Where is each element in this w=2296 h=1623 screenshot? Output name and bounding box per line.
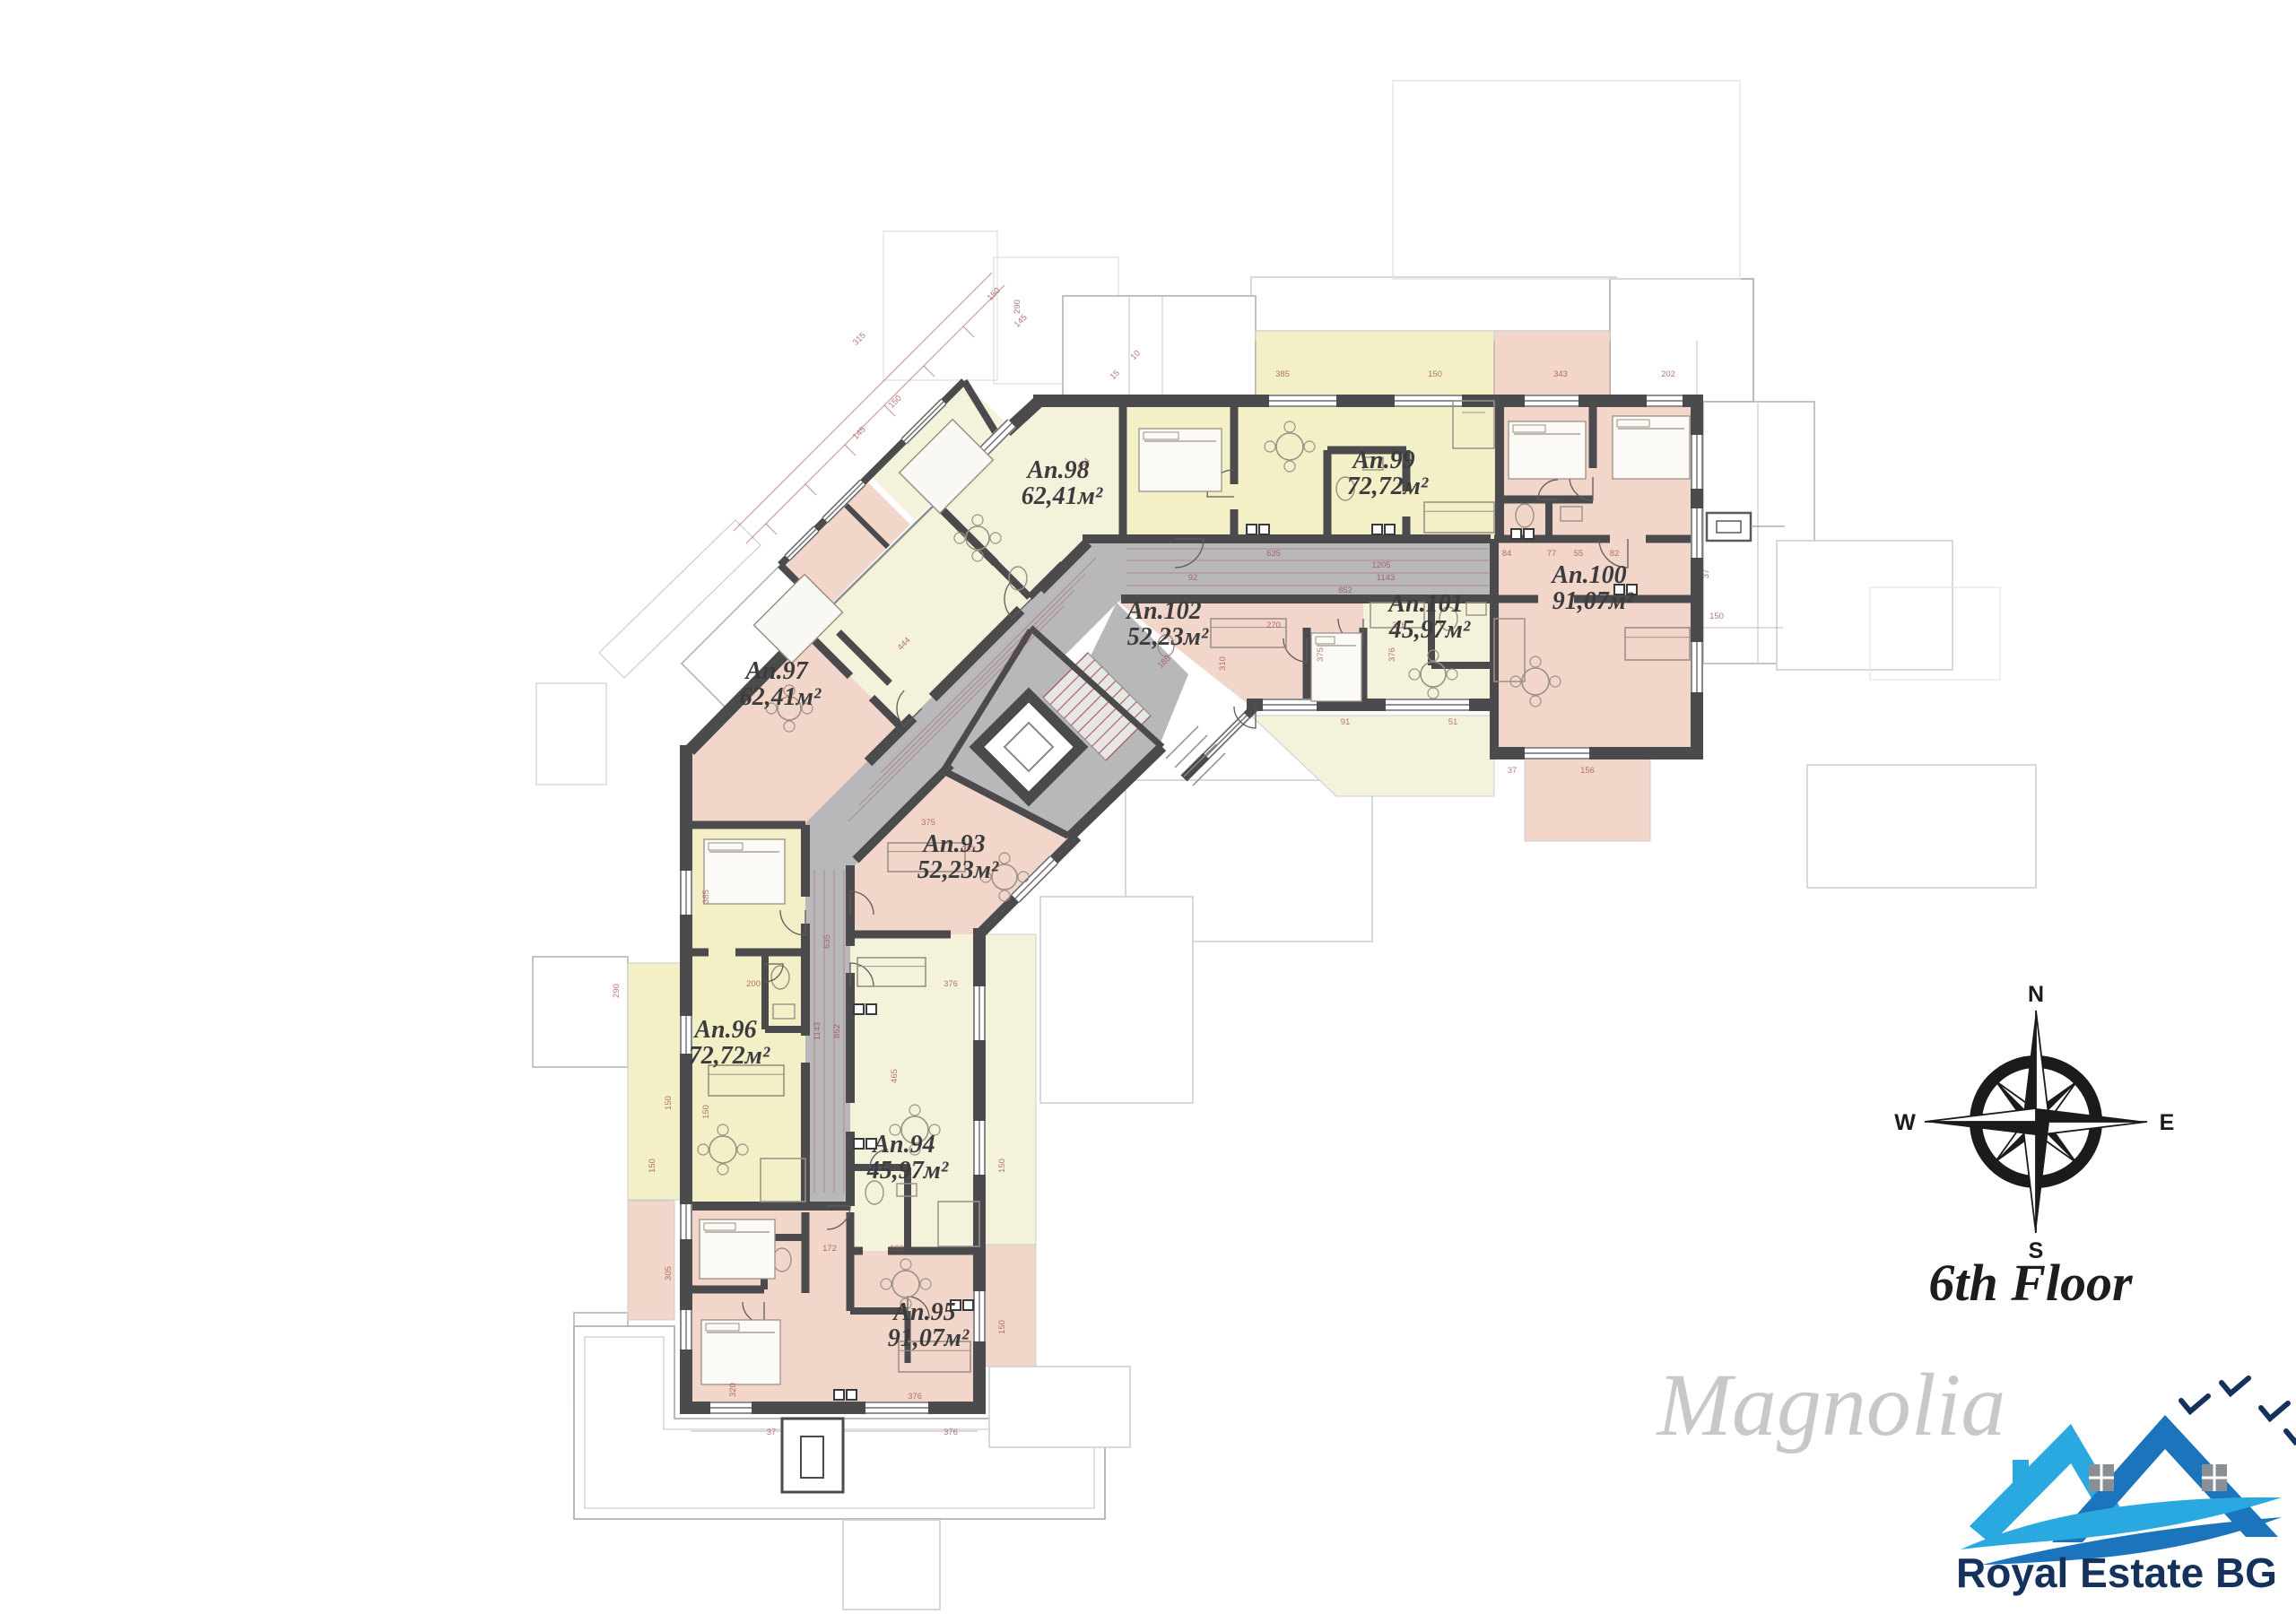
svg-text:45,97м²: 45,97м² — [866, 1157, 949, 1185]
svg-text:1143: 1143 — [1377, 573, 1395, 583]
svg-text:45,97м²: 45,97м² — [1388, 616, 1471, 644]
svg-text:Ап.95: Ап.95 — [891, 1298, 955, 1326]
svg-text:465: 465 — [890, 1069, 900, 1083]
svg-text:84: 84 — [1502, 549, 1512, 559]
svg-text:305: 305 — [664, 1266, 674, 1280]
svg-text:Ап.100: Ап.100 — [1550, 561, 1626, 589]
svg-text:Ап.102: Ап.102 — [1125, 597, 1201, 625]
svg-text:150: 150 — [997, 1159, 1007, 1173]
svg-text:Ап.97: Ап.97 — [744, 657, 808, 685]
svg-text:Ап.98: Ап.98 — [1025, 456, 1089, 484]
svg-text:1205: 1205 — [1371, 560, 1390, 570]
svg-text:376: 376 — [944, 1428, 958, 1437]
svg-text:Ап.96: Ап.96 — [692, 1016, 756, 1044]
svg-text:Ап.101: Ап.101 — [1387, 590, 1463, 618]
svg-text:635: 635 — [1266, 549, 1281, 559]
svg-text:375: 375 — [921, 818, 935, 828]
svg-text:72,72м²: 72,72м² — [1347, 473, 1429, 500]
svg-text:82: 82 — [1610, 549, 1620, 559]
svg-text:Ап.94: Ап.94 — [871, 1131, 935, 1159]
svg-text:385: 385 — [701, 890, 711, 904]
svg-text:72,72м²: 72,72м² — [689, 1042, 770, 1070]
svg-text:290: 290 — [1013, 299, 1022, 314]
svg-text:150: 150 — [1709, 612, 1724, 621]
svg-text:376: 376 — [1387, 647, 1397, 662]
svg-text:6th Floor: 6th Floor — [1928, 1254, 2133, 1312]
svg-text:376: 376 — [908, 1392, 922, 1402]
svg-text:1143: 1143 — [813, 1022, 822, 1040]
svg-text:92: 92 — [1188, 573, 1198, 583]
svg-text:91,07м²: 91,07м² — [888, 1324, 970, 1352]
svg-text:62,41м²: 62,41м² — [1022, 482, 1103, 510]
svg-text:172: 172 — [822, 1244, 837, 1254]
svg-text:Ап.99: Ап.99 — [1351, 447, 1414, 474]
svg-text:270: 270 — [1266, 621, 1281, 630]
svg-text:343: 343 — [1553, 369, 1568, 379]
svg-text:N: N — [2028, 982, 2044, 1007]
svg-text:635: 635 — [822, 934, 832, 949]
svg-text:150: 150 — [664, 1096, 674, 1110]
svg-text:37: 37 — [1701, 569, 1711, 579]
svg-text:310: 310 — [1218, 656, 1228, 671]
svg-text:290: 290 — [612, 984, 622, 998]
svg-text:91,07м²: 91,07м² — [1552, 587, 1634, 615]
svg-text:852: 852 — [1338, 586, 1352, 595]
svg-text:W: W — [1894, 1110, 1916, 1135]
svg-text:150: 150 — [648, 1159, 657, 1173]
svg-text:37: 37 — [1508, 766, 1518, 776]
svg-text:150: 150 — [701, 1105, 711, 1119]
svg-text:376: 376 — [944, 979, 958, 989]
svg-text:91: 91 — [1341, 717, 1351, 727]
svg-text:156: 156 — [1580, 766, 1595, 776]
svg-text:385: 385 — [1275, 369, 1290, 379]
svg-text:160: 160 — [890, 1244, 904, 1254]
svg-text:Royal Estate BG: Royal Estate BG — [1956, 1549, 2277, 1596]
svg-text:Magnolia: Magnolia — [1656, 1355, 2006, 1454]
svg-text:852: 852 — [832, 1024, 842, 1038]
svg-text:55: 55 — [1574, 549, 1584, 559]
svg-text:150: 150 — [997, 1320, 1007, 1334]
svg-text:52,23м²: 52,23м² — [1127, 623, 1209, 651]
svg-text:37: 37 — [767, 1428, 777, 1437]
svg-text:150: 150 — [1428, 369, 1442, 379]
svg-text:51: 51 — [1448, 717, 1458, 727]
svg-text:77: 77 — [1547, 549, 1557, 559]
svg-text:E: E — [2160, 1110, 2175, 1135]
svg-text:202: 202 — [1661, 369, 1675, 379]
svg-text:200: 200 — [746, 979, 761, 989]
svg-text:375: 375 — [1316, 647, 1326, 662]
svg-text:320: 320 — [728, 1383, 738, 1397]
svg-text:52,23м²: 52,23м² — [918, 856, 999, 884]
svg-text:Ап.93: Ап.93 — [921, 830, 985, 858]
svg-text:62,41м²: 62,41м² — [740, 683, 822, 711]
